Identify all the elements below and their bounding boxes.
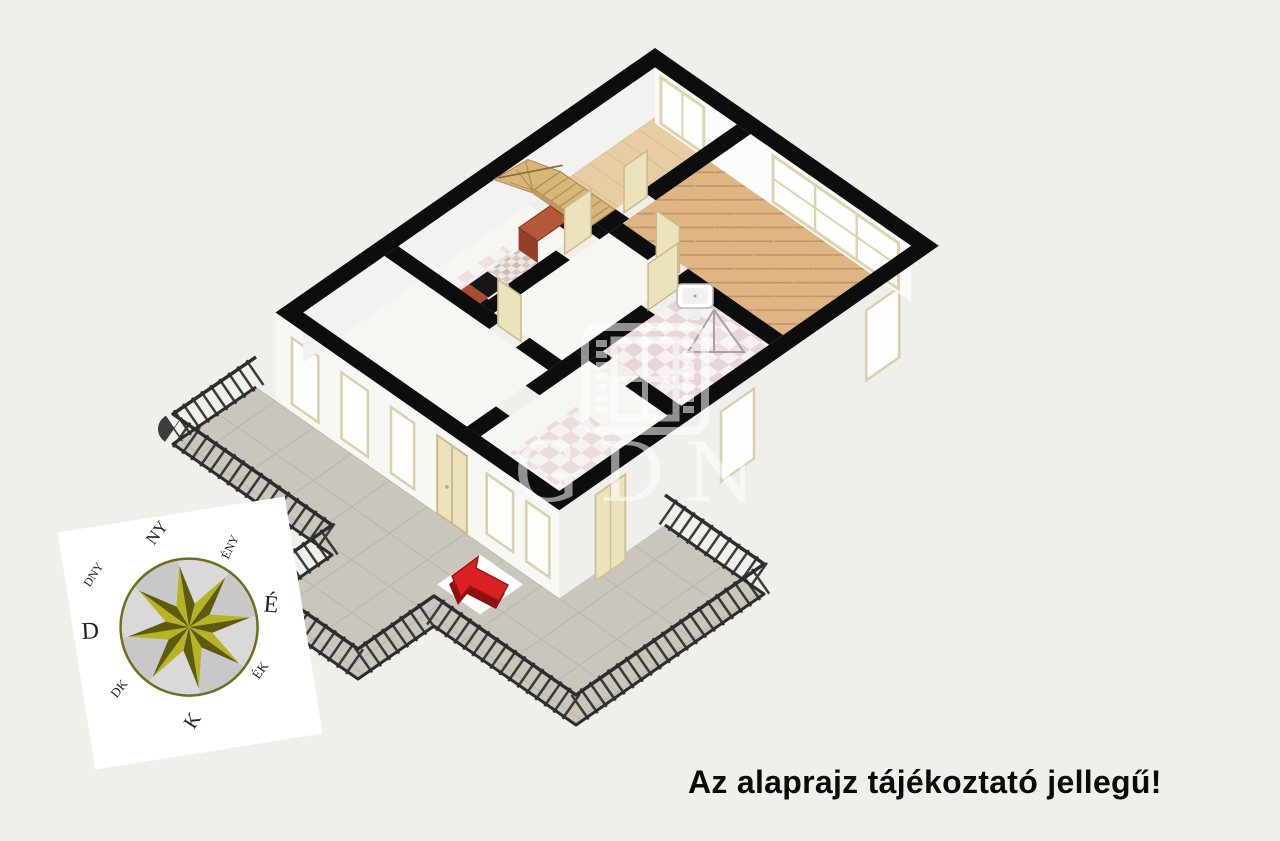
compass-label-south: D: [81, 618, 100, 646]
floorplan-image: GDN: [0, 0, 1280, 841]
disclaimer-text: Az alaprajz tájékoztató jellegű!: [688, 764, 1162, 801]
compass-label-north: É: [263, 591, 280, 619]
compass-rose: É ÉK K DK D DNY NY ÉNY: [58, 496, 323, 769]
